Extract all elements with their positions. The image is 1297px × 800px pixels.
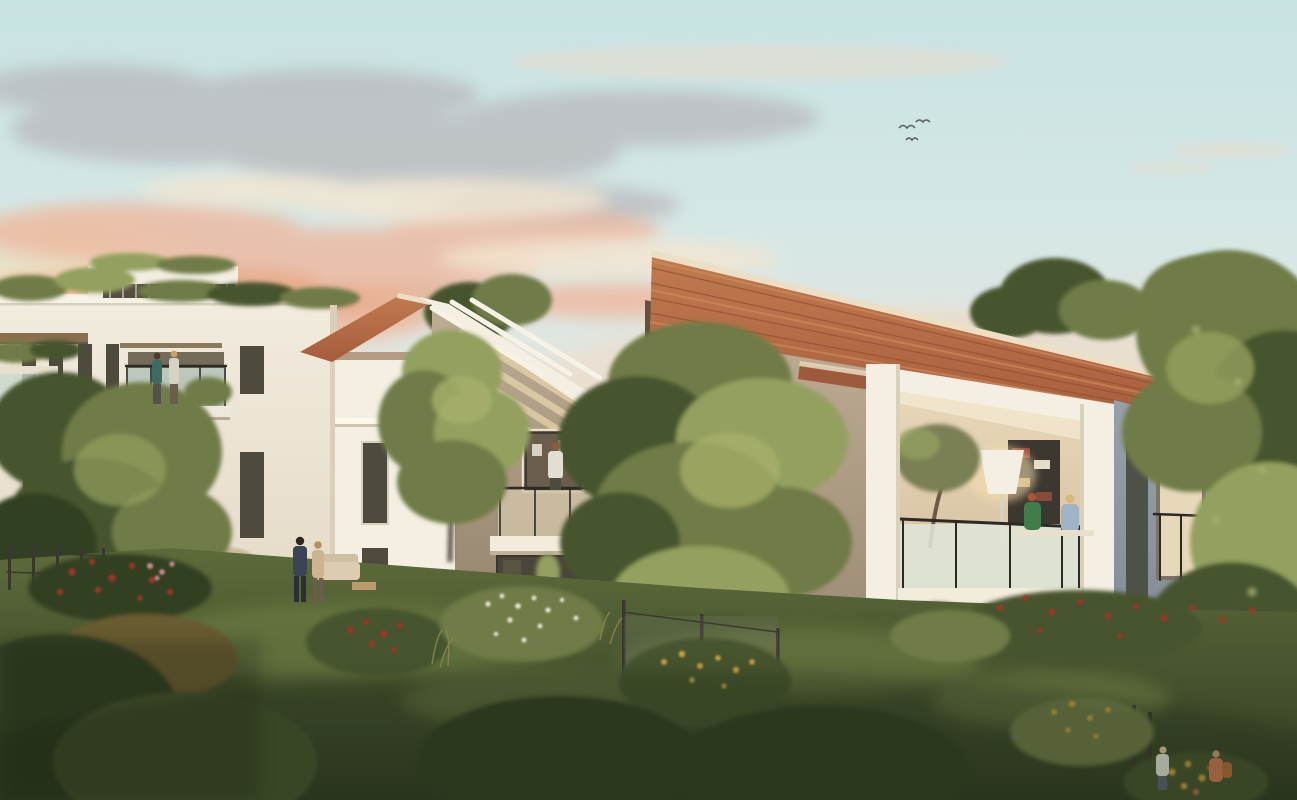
parapet-shadow [0, 303, 335, 306]
property-render-image [0, 0, 1297, 800]
terrace-table [1018, 530, 1094, 536]
balcony-person-2 [169, 351, 179, 404]
middle-window-upper [362, 442, 388, 524]
left-corner-shade [0, 640, 260, 800]
balcony-canopy [120, 343, 222, 348]
